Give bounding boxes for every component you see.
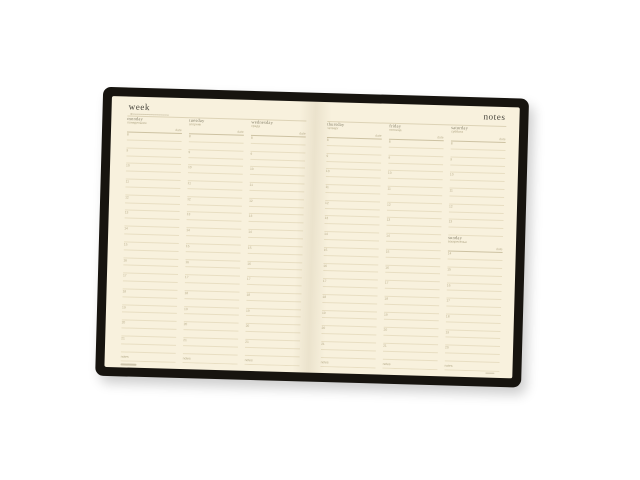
hour-slot: 12	[249, 199, 304, 216]
hour-slot: 12	[325, 201, 380, 218]
footer-brand-mark-right	[485, 372, 494, 374]
hour-label: 21	[245, 341, 249, 344]
day-column-saturday-sunday: saturdayсубботаdate8910111213sundayвоскр…	[444, 126, 506, 372]
hour-slot: 21	[383, 344, 438, 361]
hour-slot: 20	[321, 326, 376, 343]
hour-slot: 10	[188, 166, 243, 183]
hour-slot: 10	[126, 164, 181, 181]
hour-slot: 16	[247, 261, 302, 278]
hour-slot: 9	[450, 157, 505, 174]
hour-slot: 8	[388, 140, 443, 157]
date-label: date	[496, 248, 502, 251]
day-name-ru: понедельник	[127, 121, 146, 125]
hour-slot: 8	[326, 138, 381, 155]
hour-slot: 19	[184, 307, 239, 324]
hour-label: 15	[186, 245, 190, 248]
hour-label: 21	[321, 343, 325, 346]
day-header-sunday: sundayвоскресеньеdate	[448, 236, 503, 254]
hour-label: 17	[385, 282, 389, 285]
left-day-columns: mondayпонедельникdate8910111213141516171…	[121, 116, 307, 366]
hour-slot: 14	[124, 227, 179, 244]
hour-label: 9	[388, 156, 390, 159]
hour-slot: 16	[385, 265, 440, 282]
hour-slot: 9	[326, 154, 381, 171]
column-notes-line: notes	[121, 352, 176, 363]
hour-slot: 14	[186, 228, 241, 245]
day-column-tuesday: tuesdayвторникdate8910111213141516171819…	[183, 118, 245, 364]
hour-label: 16	[385, 266, 389, 269]
hour-slot: 12	[187, 197, 242, 214]
hour-slot: 17	[123, 274, 178, 291]
hour-label: 20	[322, 327, 326, 330]
hour-label: 11	[449, 190, 452, 193]
hour-label: 15	[124, 243, 128, 246]
notes-label: notes	[245, 359, 253, 362]
hour-slot: 8	[450, 142, 505, 159]
hour-slot: 18	[322, 295, 377, 312]
hour-label: 20	[383, 329, 387, 332]
hour-label: 14	[124, 228, 128, 231]
hour-label: 8	[251, 137, 253, 140]
hour-slot: 9	[388, 155, 443, 172]
hour-label: 16	[247, 262, 251, 265]
hour-label: 18	[122, 290, 126, 293]
hour-label: 10	[188, 167, 192, 170]
hour-slot: 13	[324, 216, 379, 233]
hour-label: 13	[249, 215, 253, 218]
hour-slot: 19	[384, 312, 439, 329]
hour-label: 16	[185, 261, 189, 264]
hour-label: 15	[447, 268, 451, 271]
hour-label: 18	[322, 296, 326, 299]
hour-label: 13	[387, 219, 391, 222]
hour-slot: 13	[248, 214, 303, 231]
hour-label: 12	[125, 196, 129, 199]
day-header-saturday: saturdayсубботаdate	[451, 126, 506, 144]
hour-slot: 20	[383, 328, 438, 345]
hour-label: 17	[123, 275, 127, 278]
hour-label: 12	[249, 200, 253, 203]
hour-label: 10	[250, 168, 254, 171]
hour-slot: 20	[183, 322, 238, 339]
hour-slot: 10	[388, 171, 443, 188]
hour-slot: 11	[249, 183, 304, 200]
day-name-ru: четверг	[327, 127, 338, 131]
hour-label: 11	[387, 188, 390, 191]
day-header-thursday: thursdayчетвергdate	[327, 122, 382, 140]
hour-label: 9	[326, 155, 328, 158]
left-page: week mondayпонедельникdate89101112131415…	[104, 96, 317, 373]
hour-slot: 20	[121, 321, 176, 338]
hour-label: 20	[184, 323, 188, 326]
hour-label: 18	[246, 294, 250, 297]
hour-slot: 16	[123, 258, 178, 275]
hour-slot: 11	[125, 180, 180, 197]
day-header-monday: mondayпонедельникdate	[127, 116, 182, 134]
hour-slot: 15	[385, 250, 440, 267]
notes-label: notes	[383, 363, 391, 366]
hour-label: 10	[388, 172, 392, 175]
hour-slot: 19	[246, 308, 301, 325]
notes-label: notes	[121, 356, 129, 359]
day-column-thursday: thursdayчетвергdate891011121314151617181…	[320, 122, 382, 368]
hour-label: 10	[326, 170, 330, 173]
page-title-notes: notes	[483, 112, 505, 122]
hour-label: 21	[383, 345, 387, 348]
hour-slot: 18	[246, 293, 301, 310]
hour-slot: 11	[449, 189, 504, 206]
hour-label: 13	[325, 217, 329, 220]
hour-slot: 11	[325, 185, 380, 202]
hour-slot: 19	[322, 311, 377, 328]
day-header-friday: fridayпятницаdate	[389, 124, 444, 142]
hour-slot: 12	[125, 195, 180, 212]
column-notes-line: notes	[320, 358, 375, 369]
hour-slot: 17	[446, 299, 501, 316]
day-name-ru: среда	[251, 125, 260, 128]
hour-label: 15	[324, 249, 328, 252]
hour-label: 15	[386, 251, 390, 254]
hour-label: 8	[127, 133, 129, 136]
day-header-tuesday: tuesdayвторникdate	[189, 118, 244, 136]
day-name-ru: суббота	[451, 131, 463, 135]
hour-label: 16	[323, 264, 327, 267]
hour-label: 19	[384, 313, 388, 316]
date-label: date	[500, 138, 506, 141]
hour-slot: 10	[326, 169, 381, 186]
hour-slot: 20	[245, 324, 300, 341]
hour-label: 14	[324, 233, 328, 236]
week-date-fill-line	[130, 114, 168, 116]
hour-slot: 21	[321, 342, 376, 359]
hour-slot: 15	[323, 248, 378, 265]
hour-slot: 18	[184, 291, 239, 308]
hour-label: 20	[445, 347, 449, 350]
hour-label: 14	[248, 231, 252, 234]
hour-slot: 17	[247, 277, 302, 294]
hour-slot: 16	[185, 260, 240, 277]
hour-label: 14	[186, 229, 190, 232]
column-notes-line: notes	[444, 361, 499, 372]
hour-slot: 9	[250, 152, 305, 169]
hour-slot: 11	[387, 187, 442, 204]
hour-slot: 14	[447, 252, 502, 269]
column-notes-line: notes	[183, 354, 238, 365]
hour-slot: 10	[250, 167, 305, 184]
hour-slot: 9	[188, 150, 243, 167]
hour-slot: 18	[384, 297, 439, 314]
hour-slot: 20	[445, 346, 500, 363]
hour-slot: 12	[449, 204, 504, 221]
hour-label: 8	[189, 135, 191, 138]
notes-label: notes	[321, 361, 329, 364]
hour-label: 18	[184, 292, 188, 295]
notes-label: notes	[183, 357, 191, 360]
hour-slot: 21	[183, 338, 238, 355]
hour-label: 13	[187, 214, 191, 217]
hour-label: 18	[446, 315, 450, 318]
hour-label: 17	[247, 278, 251, 281]
hour-slot: 13	[186, 213, 241, 230]
hour-label: 20	[246, 325, 250, 328]
hour-slot: 21	[121, 336, 176, 353]
hour-label: 12	[387, 204, 391, 207]
day-name-ru: пятница	[389, 129, 401, 133]
hour-label: 17	[323, 280, 327, 283]
date-label: date	[238, 130, 244, 133]
hour-slot: 14	[386, 234, 441, 251]
hour-label: 14	[386, 235, 390, 238]
hour-slot: 17	[323, 279, 378, 296]
hour-label: 20	[122, 322, 126, 325]
hour-label: 9	[450, 158, 452, 161]
hour-label: 9	[126, 149, 128, 152]
hour-label: 9	[188, 151, 190, 154]
hour-label: 15	[248, 247, 252, 250]
hour-slot: 8	[127, 132, 182, 149]
column-notes-line: notes	[382, 359, 437, 370]
hour-slot: 9	[126, 148, 181, 165]
hour-slot: 19	[122, 305, 177, 322]
hour-label: 11	[188, 182, 191, 185]
hour-label: 19	[184, 308, 188, 311]
hour-label: 9	[250, 153, 252, 156]
hour-slot: 8	[188, 134, 243, 151]
date-label: date	[376, 134, 382, 137]
column-notes-line: notes	[245, 355, 300, 366]
hour-label: 19	[445, 331, 449, 334]
hour-label: 13	[449, 221, 453, 224]
hour-slot: 15	[185, 244, 240, 261]
hour-slot: 11	[187, 181, 242, 198]
hour-label: 16	[447, 284, 451, 287]
hour-label: 21	[121, 337, 125, 340]
hour-slot: 21	[245, 340, 300, 357]
hour-slot: 15	[123, 242, 178, 259]
hour-label: 10	[126, 165, 130, 168]
hour-slot: 18	[122, 289, 177, 306]
hour-slot: 14	[324, 232, 379, 249]
hour-label: 11	[325, 186, 328, 189]
hour-slot: 17	[384, 281, 439, 298]
hour-slot: 16	[323, 263, 378, 280]
day-column-monday: mondayпонедельникdate8910111213141516171…	[121, 116, 183, 362]
day-name-ru: вторник	[189, 123, 201, 127]
hour-slot: 13	[124, 211, 179, 228]
hour-slot: 12	[387, 203, 442, 220]
hour-label: 12	[325, 202, 329, 205]
hour-label: 21	[183, 339, 187, 342]
hour-slot: 16	[446, 283, 501, 300]
footer-brand-mark-left	[120, 363, 136, 365]
hour-slot: 17	[185, 275, 240, 292]
date-label: date	[176, 129, 182, 132]
hour-slot: 18	[446, 314, 501, 331]
hour-label: 19	[322, 312, 326, 315]
hour-label: 18	[384, 298, 388, 301]
hour-label: 8	[451, 143, 453, 146]
hour-label: 12	[449, 205, 453, 208]
date-label: date	[438, 136, 444, 139]
planner-pages: week mondayпонедельникdate89101112131415…	[104, 96, 519, 378]
hour-label: 13	[125, 212, 129, 215]
day-column-wednesday: wednesdayсредаdate8910111213141516171819…	[245, 120, 307, 366]
hour-slot: 15	[247, 246, 302, 263]
hour-slot: 8	[250, 136, 305, 153]
hour-label: 14	[448, 253, 452, 256]
hour-label: 10	[450, 174, 454, 177]
day-header-wednesday: wednesdayсредаdate	[251, 120, 306, 138]
hour-label: 17	[446, 300, 450, 303]
planner-book: week mondayпонедельникdate89101112131415…	[95, 87, 529, 388]
hour-slot: 10	[450, 173, 505, 190]
hour-label: 19	[246, 309, 250, 312]
hour-label: 8	[327, 139, 329, 142]
hour-label: 16	[123, 259, 127, 262]
hour-label: 11	[249, 184, 252, 187]
hour-slot: 14	[248, 230, 303, 247]
right-page: notes thursdayчетвергdate891011121314151…	[310, 102, 519, 379]
hour-label: 19	[122, 306, 126, 309]
hour-label: 8	[389, 141, 391, 144]
hour-slot: 19	[445, 330, 500, 347]
right-day-columns: thursdayчетвергdate891011121314151617181…	[320, 122, 506, 372]
notes-label: notes	[444, 365, 452, 368]
hour-label: 12	[187, 198, 191, 201]
hour-label: 17	[185, 276, 189, 279]
page-title-week: week	[129, 102, 151, 112]
date-label: date	[300, 132, 306, 135]
hour-label: 11	[126, 181, 129, 184]
hour-slot: 13	[386, 218, 441, 235]
day-column-friday: fridayпятницаdate89101112131415161718192…	[382, 124, 444, 370]
hour-slot: 15	[447, 267, 502, 284]
day-name-ru: воскресенье	[448, 241, 467, 245]
